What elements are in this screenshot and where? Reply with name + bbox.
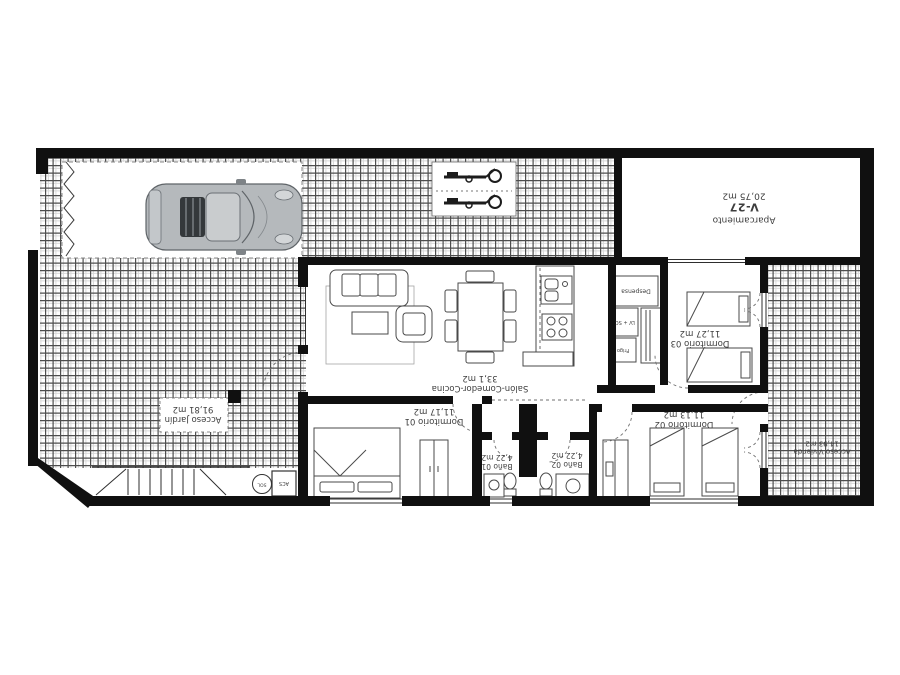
toilet xyxy=(504,473,516,489)
dining-set xyxy=(445,271,516,363)
room-label-bano1: Baño 01 4,22 m2 xyxy=(481,453,512,471)
kitchen-peninsula xyxy=(523,352,573,366)
room-label-dormitorio1: Dormitorio 01 11,17 m2 xyxy=(405,406,464,426)
label-despensa: Despensa xyxy=(621,287,651,294)
cooktop xyxy=(542,314,572,340)
car-illustration xyxy=(146,179,302,255)
label-lavadora: LV + SC xyxy=(615,319,635,325)
dining-table xyxy=(458,283,503,351)
bicycle-parking xyxy=(432,162,516,216)
bedroom2-furniture xyxy=(603,428,738,498)
floorplan-page: Aparcamiento V-27 20,75 m2 Salón-Comedor… xyxy=(0,0,900,675)
room-label-acceso: Acceso Vivienda 14,93 m2 xyxy=(794,439,851,456)
coffee-table xyxy=(352,312,388,334)
pillar xyxy=(228,390,241,403)
toilet xyxy=(540,473,552,489)
room-label-dormitorio2: Dormitorio 02 11,13 m2 xyxy=(655,409,714,429)
floorplan-drawing xyxy=(0,0,900,675)
staircase xyxy=(92,467,250,495)
room-label-dormitorio3: Dormitorio 03 11,27 m2 xyxy=(671,328,730,348)
living-room-furniture xyxy=(326,270,432,364)
label-frigo: Frigo xyxy=(617,347,629,353)
room-label-bano2: Baño 02 4,22 m2 xyxy=(551,451,582,469)
kitchen-counter xyxy=(523,266,574,366)
bedroom1-furniture xyxy=(314,428,448,498)
label-sol: SOL xyxy=(258,481,267,486)
label-acs: ACS xyxy=(279,480,289,486)
room-label-aparcamiento: Aparcamiento V-27 20,75 m2 xyxy=(713,190,776,225)
room-label-jardin: Acceso Jardín 91,81 m2 xyxy=(165,404,222,424)
room-label-salon: Salón-Comedor-Cocina 33,1 m2 xyxy=(432,373,529,393)
